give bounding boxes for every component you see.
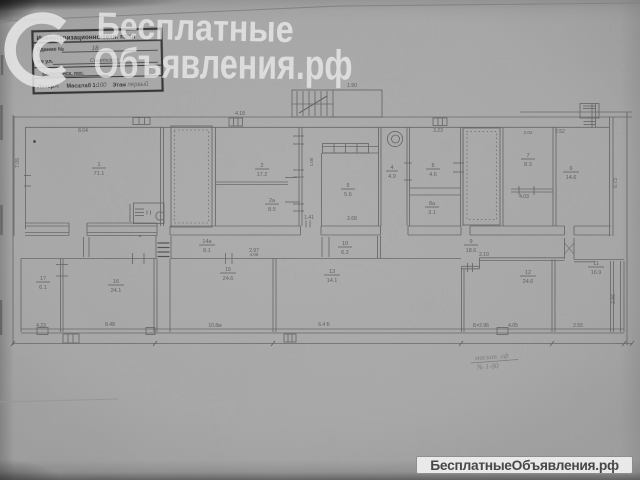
- svg-text:2.02: 2.02: [524, 130, 533, 135]
- svg-text:2а: 2а: [269, 198, 276, 204]
- svg-text:13: 13: [329, 269, 335, 275]
- svg-text:3.23: 3.23: [433, 128, 443, 134]
- svg-text:3.1: 3.1: [428, 210, 436, 216]
- svg-text:6.73: 6.73: [613, 178, 619, 188]
- svg-text:14а: 14а: [202, 239, 212, 245]
- svg-text:7.05: 7.05: [15, 158, 21, 168]
- svg-text:2.68: 2.68: [347, 216, 357, 222]
- svg-text:10.8м: 10.8м: [208, 323, 222, 329]
- svg-text:1.41: 1.41: [304, 215, 314, 221]
- svg-text:1.05: 1.05: [309, 157, 314, 166]
- svg-text:2.10: 2.10: [479, 252, 489, 258]
- svg-text:16: 16: [113, 279, 119, 285]
- svg-text:1: 1: [97, 162, 100, 168]
- svg-text:2: 2: [260, 163, 263, 169]
- svg-text:4.03: 4.03: [519, 194, 529, 200]
- svg-text:24.1: 24.1: [111, 288, 122, 294]
- svg-text:7: 7: [526, 153, 529, 159]
- svg-text:6.1: 6.1: [39, 285, 47, 291]
- svg-text:6: 6: [569, 166, 572, 172]
- svg-text:4.18: 4.18: [235, 111, 245, 117]
- svg-text:71.1: 71.1: [94, 171, 105, 177]
- svg-text:6.4 Б: 6.4 Б: [318, 322, 330, 328]
- svg-text:4.9: 4.9: [388, 174, 396, 180]
- svg-text:5.6: 5.6: [344, 192, 352, 198]
- svg-text:14.6: 14.6: [566, 175, 577, 181]
- svg-text:4.05: 4.05: [508, 323, 518, 329]
- svg-text:15: 15: [225, 267, 231, 273]
- svg-text:2.52: 2.52: [555, 129, 565, 135]
- svg-text:№ 1-80: № 1-80: [476, 362, 500, 372]
- svg-text:17: 17: [40, 276, 46, 282]
- svg-text:18.6: 18.6: [466, 248, 477, 254]
- svg-text:10: 10: [342, 241, 348, 247]
- svg-text:Б=2.96: Б=2.96: [473, 323, 489, 329]
- svg-text:4.6: 4.6: [429, 172, 437, 178]
- svg-text:8.3: 8.3: [524, 162, 532, 168]
- svg-text:4.05: 4.05: [250, 252, 259, 257]
- svg-text:24.6: 24.6: [523, 279, 534, 285]
- svg-text:2.55: 2.55: [573, 323, 583, 329]
- svg-text:8.1: 8.1: [203, 248, 211, 254]
- svg-text:5: 5: [346, 183, 349, 189]
- svg-text:16.9: 16.9: [591, 270, 602, 276]
- svg-text:8: 8: [431, 163, 434, 169]
- svg-text:6.2: 6.2: [341, 250, 349, 256]
- svg-text:8.48: 8.48: [105, 322, 115, 328]
- svg-text:24.6: 24.6: [223, 276, 234, 282]
- svg-text:11: 11: [593, 261, 599, 267]
- svg-text:8а: 8а: [429, 201, 436, 207]
- svg-text:8.5: 8.5: [268, 207, 276, 213]
- svg-text:12: 12: [525, 270, 531, 276]
- svg-text:8.04: 8.04: [78, 128, 88, 134]
- svg-text:17.2: 17.2: [257, 172, 268, 178]
- svg-text:4: 4: [390, 165, 393, 171]
- svg-text:4.23: 4.23: [36, 323, 46, 329]
- svg-text:9: 9: [469, 239, 472, 245]
- svg-text:Объявления.рф: Объявления.рф: [93, 39, 352, 88]
- svg-text:14.1: 14.1: [327, 278, 338, 284]
- svg-text:2.96: 2.96: [611, 294, 617, 304]
